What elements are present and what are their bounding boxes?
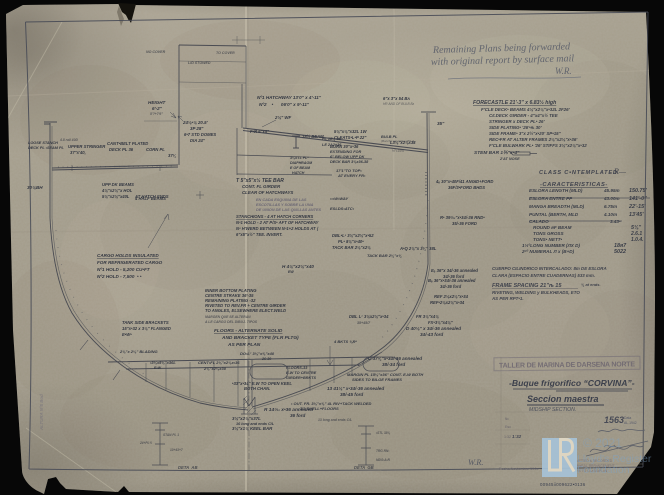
svg-text:26•30: 26•30 [261,357,271,361]
svg-text:CORN PL: CORN PL [146,147,165,152]
svg-text:ROUND яF BEAM: ROUND яF BEAM [533,225,572,230]
svg-text:5⅛"x2⅛"x40L: 5⅛"x2⅛"x40L [102,194,130,199]
svg-text:DO•L⁷ 3⅛"x⅜"x40: DO•L⁷ 3⅛"x⅜"x40 [240,351,275,356]
svg-text:FLOORS - ALTERNATE SOLID: FLOORS - ALTERNATE SOLID [214,328,283,334]
svg-text:STANCHIONS - 4 AT HATCH CORNER: STANCHIONS - 4 AT HATCH CORNERS [236,214,314,219]
svg-text:35": 35" [437,121,445,126]
svg-text:22'-15': 22'-15' [628,204,646,210]
svg-text:13+43+7: 13+43+7 [170,448,183,452]
svg-text:STEM BAR 1⅗"x•4": STEM BAR 1⅗"x•4" [474,150,520,156]
svg-text:REF•2⅛x2⅛"x•34: REF•2⅛x2⅛"x•34 [430,300,465,305]
svg-text:DETA AB: DETA AB [178,465,197,470]
svg-text:6"x 3"x 54 Bʌ: 6"x 3"x 54 Bʌ [383,96,410,101]
svg-text:MDS•A•R: MDS•A•R [376,458,391,462]
svg-text:CONT. FL GIRDER: CONT. FL GIRDER [242,184,281,189]
svg-text:2⅛" WF: 2⅛" WF [274,115,292,120]
svg-text:GIRDER+BRKTS: GIRDER+BRKTS [286,376,317,380]
svg-text:34/-43 ford: 34/-43 ford [420,332,443,337]
svg-text:© 2021: © 2021 [583,436,622,450]
svg-text:Foundation: Foundation [577,464,630,476]
svg-text:13'45': 13'45' [629,212,644,218]
svg-text:CLASS C•NTEMPLATED: CLASS C•NTEMPLATED [539,170,618,176]
svg-text:FLOORS-33: FLOORS-33 [286,366,308,370]
svg-text:4.10m: 4.10m [603,212,617,217]
svg-text:36 ford: 36 ford [290,413,306,418]
svg-text:EXTENDING FOR: EXTENDING FOR [330,150,361,154]
svg-text:37"x'40,: 37"x'40, [70,150,86,155]
svg-text:DECK PL 36: DECK PL 36 [109,147,134,152]
svg-text:STRINGER x DECK PL• 26': STRINGER x DECK PL• 26' [489,119,545,124]
svg-text:A LE CARGO DEL DIBUJ. TIPOS: A LE CARGO DEL DIBUJ. TIPOS [204,320,258,324]
svg-text:TO ANGLES, ELSEWHERE ELECT.WEL: TO ANGLES, ELSEWHERE ELECT.WELD [205,308,286,313]
svg-text:13 41⅛" x•34/-36 annealed: 13 41⅛" x•34/-36 annealed [327,386,384,391]
svg-text:A•Q 2⅛"x 3¼" 38L: A•Q 2⅛"x 3¼" 38L [399,246,437,251]
svg-text:E•W: E•W [154,366,162,370]
svg-text:4.8 rail 40D: 4.8 rail 40D [59,138,78,142]
svg-text:E-W TO CENTRE: E-W TO CENTRE [286,371,317,375]
svg-text:00945іі009622•0136: 00945іі009622•0136 [540,482,586,487]
svg-text:DIAPHRAGM: DIAPHRAGM [290,161,313,165]
svg-text:37¼: 37¼ [168,153,177,158]
svg-text:LID STOWED: LID STOWED [188,61,211,65]
svg-text:TACK BAR 2¾"x¾: TACK BAR 2¾"x¾ [367,253,402,258]
svg-text:AS PER PLAN: AS PER PLAN [227,342,261,348]
svg-text:REC•FR AT ALTER FRAMES 2⅛"x2⅛": REC•FR AT ALTER FRAMES 2⅛"x2⅛"x•36' [489,137,578,142]
svg-text:5022: 5022 [614,249,626,255]
svg-text:45.95m: 45.95m [603,188,620,193]
svg-text:2ⁿº NUMERAL Л x (В+D): 2ⁿº NUMERAL Л x (В+D) [521,249,575,254]
svg-text:ESLDS•ATC•: ESLDS•ATC• [330,206,355,211]
svg-text:ESLORA LENGTH (MLD): ESLORA LENGTH (MLD) [529,188,583,193]
svg-text:3P 28": 3P 28" [190,126,204,131]
svg-text:150.75': 150.75' [629,188,647,194]
svg-text:F'CLE BULWARK PL• '26' STIFFS: F'CLE BULWARK PL• '26' STIFFS 3⅛"x2⅛"x•3… [489,143,587,148]
svg-text:6"x5"x½" TEE. INVERT.: 6"x5"x½" TEE. INVERT. [236,232,283,237]
svg-text:38/-45 ford: 38/-45 ford [340,392,363,397]
svg-text:HR AND OF BULB Bʌ: HR AND OF BULB Bʌ [383,102,415,106]
svg-text:1.0.4.: 1.0.4. [631,237,644,243]
svg-text:F•R 6"x5": F•R 6"x5" [250,129,270,134]
svg-text:•3⅛x5⅛"x36L: •3⅛x5⅛"x36L [150,360,176,365]
svg-text:CLEAR OF HATCHWAYS: CLEAR OF HATCHWAYS [242,190,293,195]
svg-text:CUERPO CILINDRICO INTERCALADO:: CUERPO CILINDRICO INTERCALADO: 8m DE ESL… [492,266,607,271]
svg-text:E OF BEAM: E OF BEAM [290,166,311,170]
svg-text:FX•3⅛"x4⅛": FX•3⅛"x4⅛" [428,320,454,325]
svg-text:ESCOTILLAS Y SOBRE LA UNA: ESCOTILLAS Y SOBRE LA UNA [256,203,314,207]
svg-text:DECK PL •SEAM PL: DECK PL •SEAM PL [28,146,65,150]
svg-text:35+45/7: 35+45/7 [357,321,371,325]
svg-text:NO COVER: NO COVER [146,50,166,54]
svg-text:2⅛"x 2⅛" BLADING: 2⅛"x 2⅛" BLADING [119,349,158,354]
svg-text:•••W•WAY: •••W•WAY [330,196,349,201]
svg-text:C 37¾"x•34/-36 annealed: C 37¾"x•34/-36 annealed [368,356,422,361]
svg-text:6•7 STD DOMES: 6•7 STD DOMES [184,132,216,137]
svg-text:MANGA BREADTH (MLD): MANGA BREADTH (MLD) [529,204,585,209]
svg-text:D 40⅛" x 34/-36 annealed: D 40⅛" x 34/-36 annealed [406,326,461,331]
svg-text:W.R.: W.R. [468,458,484,467]
svg-text:24+PL½: 24+PL½ [139,441,152,445]
svg-text:FRAME SPACING 21"ѣ 15: FRAME SPACING 21"ѣ 15 [492,283,562,289]
svg-text:R• 39⅓₂"x•34/-36 RND•: R• 39⅓₂"x•34/-36 RND• [440,215,485,220]
svg-text:Nº H'WERD BETWEEN Nº1+2 HOLDS: Nº H'WERD BETWEEN Nº1+2 HOLDS AT ⌊ [236,226,319,231]
svg-text:½"•15⅛: ½"•15⅛ [392,149,404,153]
svg-text:1563: 1563 [604,415,624,425]
svg-text:T 5"x5"x½ TEE BAR: T 5"x5"x½ TEE BAR [236,177,284,184]
svg-text:STAN PL 1: STAN PL 1 [163,433,179,437]
svg-text:24⅛•⅛ 20.5': 24⅛•⅛ 20.5' [182,120,209,125]
svg-text:AND BRACKET TYPE (FLR PLTG): AND BRACKET TYPE (FLR PLTG) [221,335,299,341]
svg-text:2⅛"x2⅛x30: 2⅛"x2⅛x30 [203,366,227,371]
svg-text:1⅓ºLONG NUMBER (ЛX D): 1⅓ºLONG NUMBER (ЛX D) [522,243,580,248]
svg-text:¾ at ends.: ¾ at ends. [581,282,601,287]
svg-text:38/-34 ford: 38/-34 ford [382,362,405,367]
svg-text:18½ BEAM: 18½ BEAM [302,134,324,139]
svg-text:SIDE FRAME• 3"x 2½"x•20' SP•15: SIDE FRAME• 3"x 2½"x•20' SP•15" [489,131,562,136]
svg-text:W.R.: W.R. [555,66,572,76]
svg-text:Nº2 • 06'0" x 9'-11": Nº2 • 06'0" x 9'-11" [259,102,310,107]
svg-text:EN CADA ESQUINA DE LAS: EN CADA ESQUINA DE LAS [256,198,307,202]
svg-text:CARGO HOLDS INSULATED: CARGO HOLDS INSULATED [97,253,159,258]
svg-text:PUNTAL (BERTH, MLD: PUNTAL (BERTH, MLD [529,212,579,217]
svg-text:MARGEN QUE SE ALTERAN: MARGEN QUE SE ALTERAN [205,315,251,319]
svg-text:PL• 8⅛"x•40•: PL• 8⅛"x•40• [338,239,364,244]
svg-text:Nº2 HOLD - 7,500 • •: Nº2 HOLD - 7,500 • • [97,274,142,279]
svg-text:DBL L⁷ 3⅛x2⅛"x•34: DBL L⁷ 3⅛x2⅛"x•34 [349,314,389,319]
svg-text:6'-2": 6'-2" [152,106,163,111]
svg-text:DECK BAR 3⅛x36-38: DECK BAR 3⅛x36-38 [330,160,369,164]
svg-text:TANK SIDE BRACKETS: TANK SIDE BRACKETS [122,320,169,325]
svg-text:Esc: Esc [505,425,511,429]
svg-text:ALTURA Nº5 Bod: ALTURA Nº5 Bod [39,394,44,431]
svg-text:DE UNION DE LAS QUILLAS ANTES: DE UNION DE LAS QUILLAS ANTES [256,208,322,212]
svg-text:4 HALF BEAMS: 4 HALF BEAMS [134,196,166,201]
svg-text:EW: EW [288,270,294,274]
svg-text:AS PER RPT•1.: AS PER RPT•1. [491,296,524,301]
svg-text:6.75m: 6.75m [604,204,617,209]
svg-text:TO COVER: TO COVER [216,51,235,55]
svg-text:43.00m: 43.00m [603,196,620,201]
svg-text:SIDE PLATING• '26'•ѣ 30': SIDE PLATING• '26'•ѣ 30' [489,125,542,130]
svg-text:CALADO: CALADO [529,219,549,224]
svg-text:4⅛"x2⅛"x HOL: 4⅛"x2⅛"x HOL [101,188,133,193]
svg-text:Nº1 HOLD - 5,200 CU•FT: Nº1 HOLD - 5,200 CU•FT [97,267,151,272]
svg-text:MIDSHIP SECTION.: MIDSHIP SECTION. [529,407,576,413]
svg-text:141'-0": 141'-0" [629,196,647,202]
svg-text:5⅛"x⅛"x32L 1W: 5⅛"x⅛"x32L 1W [334,129,368,134]
svg-text:FR 3⅛"x4⅛: FR 3⅛"x4⅛ [416,314,439,319]
svg-text:TONS• NETT•: TONS• NETT• [533,237,563,242]
svg-text:TACK BAR 2⅛"x2⅛: TACK BAR 2⅛"x2⅛ [332,245,371,250]
svg-text:UPPER STRINGER: UPPER STRINGER [68,144,105,149]
svg-text:CANT•BELT PLATED: CANT•BELT PLATED [107,141,148,146]
svg-text:Cℓ.DECK GIRDER - 4"x4"x½ TEE: Cℓ.DECK GIRDER - 4"x4"x½ TEE [489,113,559,118]
svg-text:CLEATS•L•P 22": CLEATS•L•P 22" [334,135,367,140]
svg-text:Eₑ 36"x 34/-36 annealed: Eₑ 36"x 34/-36 annealed [431,268,478,273]
svg-text:RIVETING, WELDING у BULKHEADS,: RIVETING, WELDING у BULKHEADS, ETO [492,290,580,295]
svg-text:HEIGHT: HEIGHT [148,100,167,105]
svg-text:-Buque frigorifico “CORVINA”-: -Buque frigorifico “CORVINA”- [509,378,635,388]
svg-text:REF 2⅛x2⅛"x•34: REF 2⅛x2⅛"x•34 [434,294,469,299]
svg-text:HATCH: HATCH [292,171,305,175]
svg-text:TALLER DE MARINA DE DARSENA NO: TALLER DE MARINA DE DARSENA NORTE [499,361,635,369]
svg-text:3⅛"x2⅛"x37L: 3⅛"x2⅛"x37L [232,416,261,421]
svg-text:Fecha Noviembre 194я: Fecha Noviembre 194я [499,467,538,471]
svg-text:L3⅛"x2⅛x38: L3⅛"x2⅛x38 [390,140,416,145]
svg-text:Bₑ 36"x•34/-36 annealed: Bₑ 36"x•34/-36 annealed [428,278,476,283]
svg-text:13 long and ends C/L: 13 long and ends C/L [318,418,352,422]
svg-text:Seccion maestra: Seccion maestra [527,394,599,404]
svg-text:AL.1942: AL.1942 [624,421,637,425]
svg-text:3⅛STL PLⁿ: 3⅛STL PLⁿ [290,156,309,160]
svg-text:TONS GROSS: TONS GROSS [533,231,564,236]
svg-text:3⅛"x1⅛ KEEL BAR: 3⅛"x1⅛ KEEL BAR [232,426,273,431]
svg-text:•STL 38⅛: •STL 38⅛ [376,431,391,435]
svg-text:AT EVERY FR•: AT EVERY FR• [337,173,366,178]
svg-text:CENT•FL 2⅛"x2⅛x•36: CENT•FL 2⅛"x2⅛x•36 [198,360,240,365]
svg-text:1:32: 1:32 [512,434,522,439]
svg-text:4ₑ 30"x•40F/41 ANGID+FORD: 4ₑ 30"x•40F/41 ANGID+FORD [435,179,493,184]
svg-text:36F/3•FORD BHDS: 36F/3•FORD BHDS [448,185,485,190]
svg-text:BOTH CHAN.: BOTH CHAN. [244,386,270,391]
svg-text:30⅛BH: 30⅛BH [27,185,43,190]
svg-text:Data: Data [624,416,631,420]
svg-text:4 BKTS ⅜Rⁿ: 4 BKTS ⅜Rⁿ [333,339,358,344]
svg-text:TRG RN•: TRG RN• [376,449,390,453]
svg-text:1:32: 1:32 [504,435,511,439]
svg-text:FORECASTLE 21'-3" x 6.83½ high: FORECASTLE 21'-3" x 6.83½ high [473,99,556,106]
svg-text:BURN 30"x•36: BURN 30"x•36 [330,144,359,149]
svg-text:№: № [505,417,509,421]
svg-text:E•W•: E•W• [122,332,132,337]
svg-text:F'CLE DECK• BEAMS 4⅛"x2⅛"x•32L: F'CLE DECK• BEAMS 4⅛"x2⅛"x•32L 2F26' [481,107,571,112]
svg-text:R—: R— [613,167,627,176]
svg-text:H 4⅛"x2⅛"x40: H 4⅛"x2⅛"x40 [282,264,314,269]
svg-text:CLARA (ESPACIO ENTRE CUADERNAS: CLARA (ESPACIO ENTRE CUADERNAS) 533 mm. [492,273,595,278]
svg-text:FOR REFRIGERATED CARGO: FOR REFRIGERATED CARGO [97,260,163,265]
svg-text:DBL•L³ 3⅛"x2⅛"x•52: DBL•L³ 3⅛"x2⅛"x•52 [332,233,374,238]
svg-text:UPP DK BEAMS: UPP DK BEAMS [102,182,134,187]
svg-text:34/-36 ford: 34/-36 ford [440,284,462,289]
svg-text:LOOSE STANCH: LOOSE STANCH [28,141,58,145]
svg-text:35/-36 FORD: 35/-36 FORD [452,221,477,226]
svg-text:15"x•32 x 3⅛" FLANGED: 15"x•32 x 3⅛" FLANGED [122,326,171,331]
svg-text:SIDES TO BILGE FRAMES: SIDES TO BILGE FRAMES [352,377,402,382]
svg-text:5'?+7'6": 5'?+7'6" [150,112,163,116]
svg-text:2'AT NOSE: 2'AT NOSE [499,157,520,161]
svg-text:6" BELOW UPP DK: 6" BELOW UPP DK [330,155,365,159]
svg-text:Nº1 HOLD - 2 AT P/S• AFT OF HA: Nº1 HOLD - 2 AT P/S• AFT OF HATCHWAY [236,220,320,225]
svg-text:ESLORA ENTRE PP: ESLORA ENTRE PP [529,196,573,201]
svg-text:Nº1 HATCHWAY 13'0" x 4'-11": Nº1 HATCHWAY 13'0" x 4'-11" [257,95,322,100]
svg-text:3.43•: 3.43• [610,219,621,224]
svg-text:DIA 24": DIA 24" [190,138,206,143]
svg-text:DETA GB: DETA GB [354,465,374,470]
